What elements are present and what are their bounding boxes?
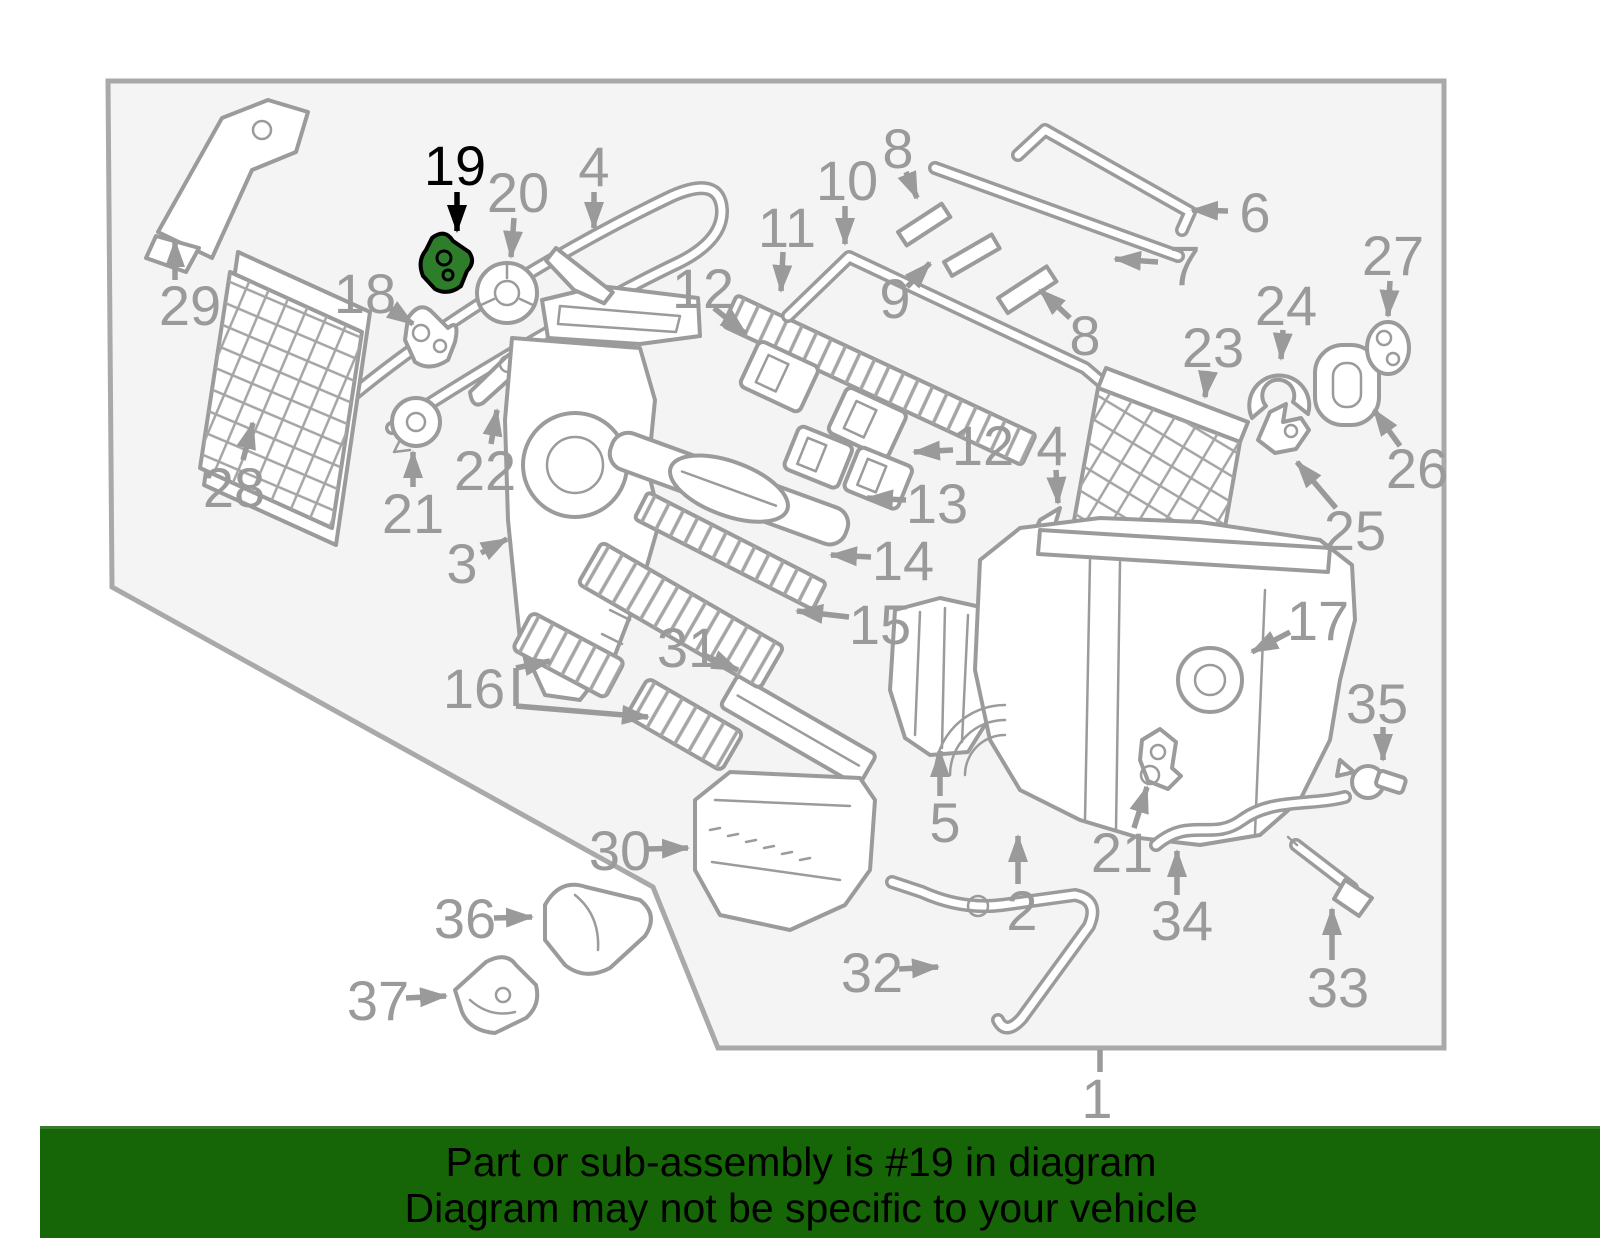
part-label-17: 17	[1287, 589, 1349, 652]
banner-line1: Part or sub-assembly is #19 in diagram	[40, 1139, 1562, 1185]
part-label-19: 19	[424, 134, 486, 197]
part-label-8: 8	[882, 117, 913, 180]
part-label-29: 29	[159, 274, 221, 337]
part-label-1: 1	[1081, 1067, 1112, 1130]
part-27-grommet	[1367, 322, 1409, 374]
diagram-canvas: 2928181920421223163130363732108111298762…	[0, 0, 1600, 1249]
part-label-37: 37	[347, 969, 409, 1032]
part-label-28: 28	[203, 456, 265, 519]
part-label-4: 4	[578, 135, 609, 198]
part-label-16: 16	[443, 657, 505, 720]
part-20-motor	[477, 263, 537, 323]
part-label-3: 3	[446, 532, 477, 595]
leader-arrow-32	[899, 967, 938, 969]
leader-arrow-37	[406, 996, 446, 998]
part-label-33: 33	[1307, 956, 1369, 1019]
part-label-20: 20	[487, 161, 549, 224]
part-label-4: 4	[1036, 414, 1067, 477]
part-label-25: 25	[1324, 499, 1386, 562]
part-label-10: 10	[816, 149, 878, 212]
leader-arrow-12	[914, 450, 953, 452]
part-label-18: 18	[334, 262, 396, 325]
part-label-9: 9	[879, 267, 910, 330]
leader-arrow-13	[867, 498, 906, 500]
leader-arrow-14	[831, 555, 871, 557]
part-label-22: 22	[454, 439, 516, 502]
leader-arrow-6	[1192, 210, 1228, 211]
part-label-8: 8	[1069, 304, 1100, 367]
part-label-32: 32	[841, 941, 903, 1004]
leader-arrow-36	[494, 917, 532, 918]
part-label-11: 11	[758, 196, 816, 259]
part-label-15: 15	[849, 593, 911, 656]
part-label-26: 26	[1386, 437, 1448, 500]
part-label-5: 5	[929, 791, 960, 854]
part-37-cover	[455, 957, 537, 1033]
part-label-7: 7	[1169, 234, 1200, 297]
part-label-13: 13	[906, 472, 968, 535]
highlight-banner: Part or sub-assembly is #19 in diagram D…	[40, 1126, 1600, 1238]
part-label-21: 21	[1091, 821, 1153, 884]
part-label-36: 36	[434, 887, 496, 950]
part-36-duct	[545, 885, 651, 974]
part-label-30: 30	[589, 819, 651, 882]
part-label-6: 6	[1239, 181, 1270, 244]
parts-diagram-page: 2928181920421223163130363732108111298762…	[0, 0, 1600, 1249]
part-label-2: 2	[1006, 879, 1037, 942]
leader-arrow-7	[1115, 259, 1158, 262]
part-label-14: 14	[872, 529, 934, 592]
part-label-12: 12	[952, 414, 1014, 477]
part-label-35: 35	[1346, 672, 1408, 735]
part-label-23: 23	[1182, 316, 1244, 379]
banner-line2: Diagram may not be specific to your vehi…	[40, 1185, 1562, 1231]
leader-arrow-30	[647, 848, 688, 849]
part-label-27: 27	[1362, 224, 1424, 287]
part-label-31: 31	[657, 616, 719, 679]
part-label-21: 21	[382, 482, 444, 545]
part-label-12: 12	[672, 257, 734, 320]
part-label-24: 24	[1255, 274, 1317, 337]
part-label-34: 34	[1151, 889, 1213, 952]
